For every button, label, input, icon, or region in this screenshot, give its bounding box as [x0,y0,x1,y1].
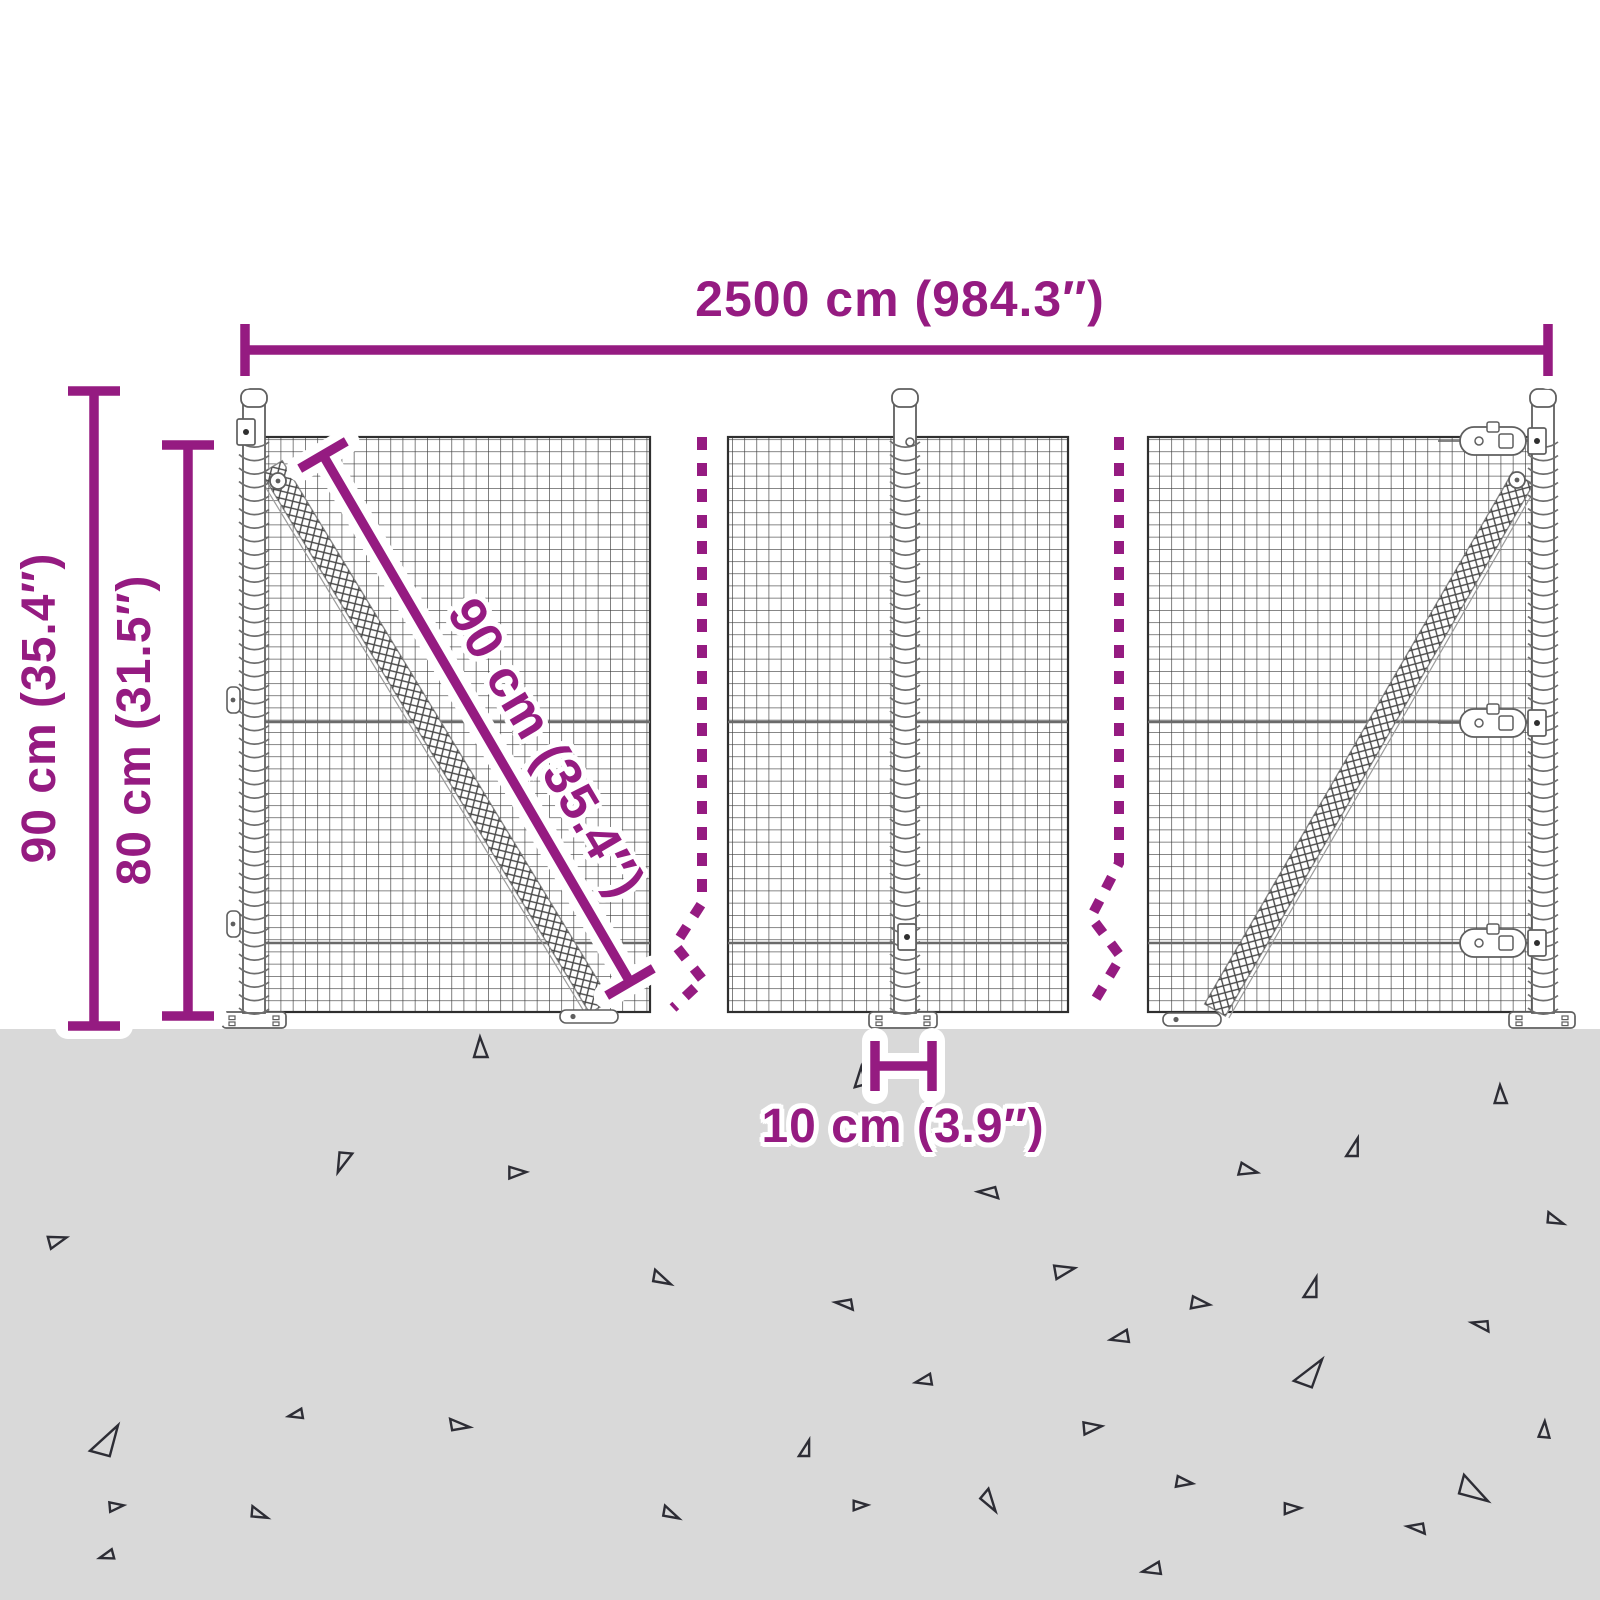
dimension-total-width [245,324,1548,376]
fence-drawing [0,0,1600,1600]
dimension-label-total-width: 2500 cm (984.3″) [695,274,1105,324]
post-body [1532,403,1554,1013]
fence-dimension-diagram: 2500 cm (984.3″) 90 cm (35.4″) 80 cm (31… [0,0,1600,1600]
dimension-label-plate-width: 10 cm (3.9″) [761,1103,1044,1151]
dimension-mesh-height [162,445,214,1016]
post-cap [892,389,918,407]
brace-foot [560,1010,618,1023]
post-body [243,403,265,1013]
dimension-label-post-height: 90 cm (35.4″) [16,553,64,864]
post-cap [241,389,267,407]
post-cap [1530,389,1556,407]
brace-foot [1163,1013,1221,1026]
post-body [894,403,916,1013]
dimension-label-mesh-height: 80 cm (31.5″) [111,575,159,886]
bolt [906,438,914,446]
break-line [1091,437,1121,1005]
break-line [673,437,703,1008]
